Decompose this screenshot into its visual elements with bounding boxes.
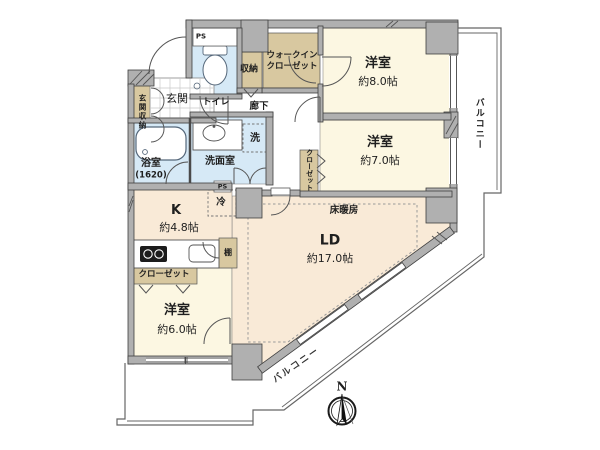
- label-closet-bedroom6: クローゼット: [138, 271, 189, 280]
- wall-bedroom-divider: [322, 113, 451, 120]
- washbasin-tap: [213, 125, 216, 128]
- label-bath-size: (1620): [135, 172, 166, 181]
- label-wic-line2: クローゼット: [266, 63, 317, 72]
- wall-kitchen-top: [128, 183, 232, 190]
- label-ps-top: PS: [196, 33, 206, 40]
- label-ps-mid: PS: [218, 183, 227, 190]
- label-compass-north: N: [337, 381, 348, 394]
- label-entrance: 玄関: [166, 93, 188, 105]
- label-toilet: トイレ: [202, 98, 229, 107]
- label-bedroom6-name: 洋室: [164, 304, 190, 318]
- wall-washroom-right: [266, 112, 273, 185]
- label-closet-bedroom7: クローゼット: [305, 149, 312, 191]
- label-storage: 収納: [240, 65, 258, 74]
- toilet-bowl: [203, 55, 227, 85]
- toilet-tank: [203, 46, 227, 55]
- floor-plan: 玄関収納 玄関 トイレ PS PS 収納 ウォークイン クローゼット 廊下 洋室…: [0, 0, 600, 450]
- label-living-name: LD: [320, 234, 341, 249]
- pillar-ld-bottom: [232, 344, 262, 380]
- kitchen-sink: [189, 245, 215, 262]
- door-arc-bedroom7: [295, 97, 320, 122]
- label-bedroom6-size: 約6.0帖: [157, 324, 197, 336]
- label-bedroom8-name: 洋室: [365, 57, 391, 71]
- washbasin-counter: [193, 120, 242, 150]
- label-bedroom8-size: 約8.0帖: [358, 76, 398, 88]
- label-shelf: 棚: [224, 249, 232, 257]
- label-kitchen-name: K: [171, 204, 181, 218]
- wall-bedroom7-bottom: [300, 191, 452, 197]
- label-living-size: 約17.0帖: [307, 253, 354, 265]
- wall-toilet-right: [237, 28, 242, 94]
- kitchen-counter: [133, 240, 219, 268]
- wall-washroom-top: [190, 112, 273, 117]
- label-bedroom7-name: 洋室: [367, 136, 393, 150]
- wall-top-center-chunk: [241, 20, 268, 52]
- label-washroom: 洗面室: [205, 157, 235, 168]
- label-floor-heating: 床暖房: [330, 206, 359, 216]
- door-leaf-living: [271, 188, 290, 195]
- pillar-kitchen: [236, 188, 262, 218]
- wall-toilet-left: [186, 20, 192, 78]
- wall-storage-bottom: [237, 88, 262, 93]
- room-fills: [131, 26, 450, 370]
- label-balcony-right: バルコニー: [473, 98, 482, 151]
- label-laundry: 洗: [250, 134, 260, 145]
- wall-ld-door-stub-right: [290, 190, 300, 196]
- label-wic-line1: ウォークイン: [266, 52, 317, 61]
- label-bedroom7-size: 約7.0帖: [360, 155, 400, 167]
- wall-wic-bottom: [262, 88, 322, 93]
- label-kitchen-size: 約4.8帖: [159, 222, 199, 234]
- compass: [329, 394, 356, 425]
- label-hallway: 廊下: [249, 102, 268, 112]
- wall-left: [128, 84, 134, 364]
- wall-hall-bedroom8-a: [318, 26, 323, 55]
- wall-ld-door-stub-left: [262, 190, 272, 196]
- label-fridge: 冷: [216, 198, 226, 208]
- door-arc-entrance: [149, 37, 186, 74]
- label-bath-name: 浴室: [141, 159, 161, 170]
- bathtub: [136, 127, 186, 160]
- label-entrance-storage: 玄関収納: [138, 94, 146, 130]
- pillar-top-right: [426, 22, 458, 54]
